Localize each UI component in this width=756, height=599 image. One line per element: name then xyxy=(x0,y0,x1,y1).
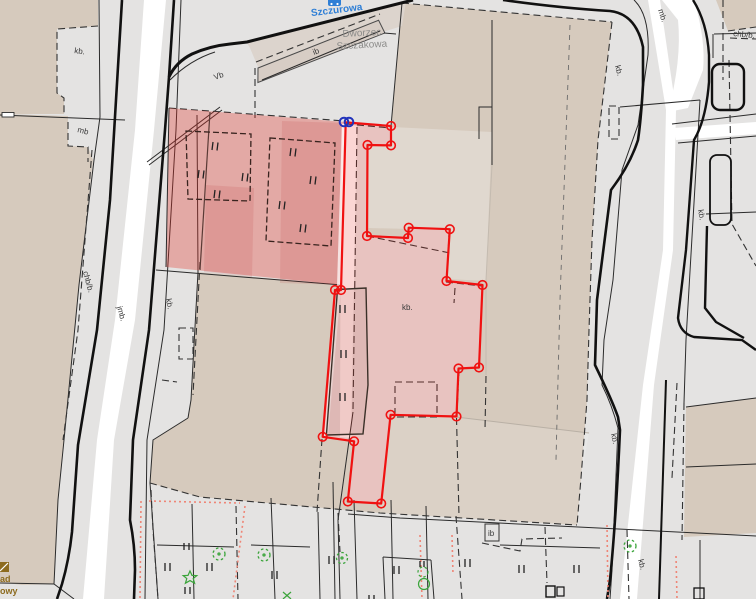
svg-text:kb.: kb. xyxy=(402,303,413,312)
svg-text:kb.: kb. xyxy=(164,298,175,310)
svg-text:kb.: kb. xyxy=(696,209,707,221)
svg-text:kb.: kb. xyxy=(74,46,86,56)
svg-text:Dworzec: Dworzec xyxy=(342,27,381,40)
svg-text:ad: ad xyxy=(0,574,11,584)
svg-text:ib: ib xyxy=(488,529,495,538)
svg-text:owy: owy xyxy=(0,586,18,596)
